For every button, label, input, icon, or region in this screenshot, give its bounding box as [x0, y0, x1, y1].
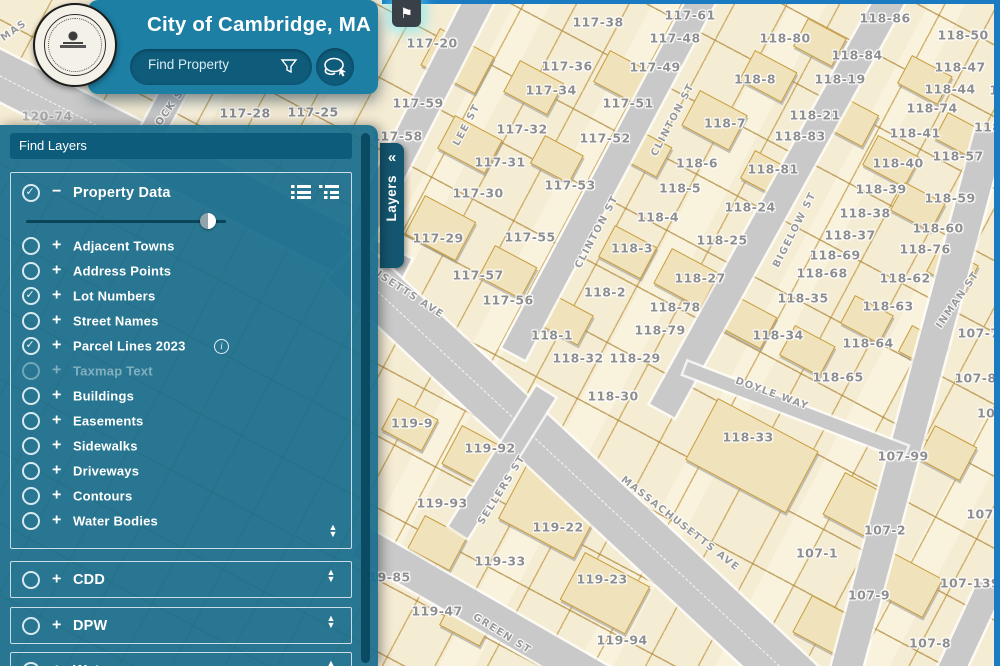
lot-number-label[interactable]: 118-47 — [934, 60, 985, 75]
layer-name[interactable]: Buildings — [73, 389, 134, 404]
lot-number-label[interactable]: 118-5 — [659, 181, 701, 196]
layer-name[interactable]: Contours — [73, 489, 132, 504]
expand-icon[interactable]: + — [52, 311, 61, 329]
layer-checkbox[interactable] — [22, 512, 40, 530]
lot-number-label[interactable]: 117-56 — [482, 293, 533, 308]
lot-number-label[interactable]: 118-59 — [924, 191, 975, 206]
group-name[interactable]: CDD — [73, 572, 105, 588]
lot-number-label[interactable]: 118-64 — [842, 336, 893, 351]
layer-group-cdd[interactable]: +CDD▲▼ — [10, 561, 352, 598]
layer-checkbox[interactable] — [22, 387, 40, 405]
check-icon: ✓ — [26, 185, 35, 198]
lot-number-label[interactable]: 118-86 — [859, 11, 910, 26]
panel-scrollbar[interactable] — [361, 133, 370, 663]
lot-number-label[interactable]: 118-68 — [796, 266, 847, 281]
lot-number-label[interactable]: 118-78 — [649, 300, 700, 315]
lot-number-label[interactable]: 117-55 — [504, 230, 555, 245]
check-icon: ✓ — [26, 288, 35, 301]
layer-name[interactable]: Water Bodies — [73, 514, 158, 529]
lot-number-label[interactable]: 117-59 — [392, 96, 443, 111]
lot-number-label[interactable]: 118-4 — [637, 210, 679, 225]
lot-number-label[interactable]: 117-53 — [544, 178, 595, 193]
lasso-select-button[interactable] — [316, 48, 354, 86]
layer-group-property-data[interactable]: ✓−Property Data+Adjacent Towns+Address P… — [10, 172, 352, 549]
lot-number-label[interactable]: 118-74 — [906, 101, 957, 116]
group-header-row[interactable]: +DPW▲▼ — [11, 615, 351, 637]
lot-number-label[interactable]: 120-74 — [21, 109, 72, 124]
reorder-icon[interactable]: ▲▼ — [325, 569, 337, 583]
lot-number-label[interactable]: 118-50 — [937, 28, 988, 43]
lot-number-label[interactable]: 118-34 — [752, 328, 803, 343]
expand-icon[interactable]: + — [52, 336, 61, 354]
lot-number-label[interactable]: 117-51 — [602, 96, 653, 111]
search-input[interactable] — [146, 56, 270, 73]
layers-tab-label: Layers — [384, 175, 399, 222]
legend-indent-icon[interactable] — [319, 185, 339, 201]
expand-icon[interactable]: + — [52, 570, 61, 588]
layer-checkbox[interactable] — [22, 312, 40, 330]
layer-checkbox[interactable] — [22, 262, 40, 280]
layer-row-adjacent-towns[interactable]: +Adjacent Towns — [11, 235, 351, 257]
layer-name[interactable]: Parcel Lines 2023 — [73, 339, 186, 354]
lot-number-label[interactable]: 118-3 — [611, 241, 653, 256]
layer-checkbox[interactable] — [22, 362, 40, 380]
slider-track[interactable] — [26, 220, 226, 223]
lot-number-label[interactable]: 119-47 — [411, 604, 462, 619]
map-right-edge — [994, 0, 1000, 666]
lot-number-label[interactable]: 118-60 — [912, 221, 963, 236]
lot-number-label[interactable]: 117-36 — [541, 59, 592, 74]
layer-row-buildings[interactable]: +Buildings — [11, 385, 351, 407]
lot-number-label[interactable]: 118-80 — [759, 31, 810, 46]
layer-row-water-bodies[interactable]: +Water Bodies — [11, 510, 351, 532]
layer-checkbox[interactable] — [22, 571, 40, 589]
lot-number-label[interactable]: 117-61 — [664, 8, 715, 23]
opacity-slider[interactable] — [26, 213, 226, 229]
lot-number-label[interactable]: 119-23 — [576, 572, 627, 587]
layer-name[interactable]: Taxmap Text — [73, 364, 153, 379]
layer-name[interactable]: Street Names — [73, 314, 159, 329]
reorder-icon[interactable]: ▲▼ — [327, 524, 339, 538]
lot-number-label[interactable]: 107-8 — [909, 636, 951, 651]
lot-number-label[interactable]: 117-31 — [474, 155, 525, 170]
layer-checkbox[interactable] — [22, 662, 40, 666]
layer-name[interactable]: Lot Numbers — [73, 289, 155, 304]
expand-icon[interactable]: + — [52, 486, 61, 504]
lot-number-label[interactable]: 118-19 — [814, 72, 865, 87]
lot-number-label[interactable]: 117-34 — [525, 83, 576, 98]
lot-number-label[interactable]: 119-93 — [416, 496, 467, 511]
slider-handle[interactable] — [200, 213, 216, 229]
expand-icon[interactable]: + — [52, 616, 61, 634]
layer-checkbox[interactable] — [22, 462, 40, 480]
layer-checkbox[interactable] — [22, 617, 40, 635]
lot-number-label[interactable]: 118-38 — [839, 206, 890, 221]
lot-number-label[interactable]: 117-52 — [579, 131, 630, 146]
lot-number-label[interactable]: 119-22 — [532, 520, 583, 535]
layer-name[interactable]: Adjacent Towns — [73, 239, 175, 254]
lot-number-label[interactable]: 117-57 — [452, 268, 503, 283]
lot-number-label[interactable]: 107-9 — [848, 588, 890, 603]
lot-number-label[interactable]: 117-32 — [496, 122, 547, 137]
reorder-icon[interactable]: ▲▼ — [325, 615, 337, 629]
layer-row-taxmap-text[interactable]: +Taxmap Text — [11, 360, 351, 382]
page-title: City of Cambridge, MA — [146, 13, 372, 37]
layer-row-easements[interactable]: +Easements — [11, 410, 351, 432]
lot-number-label[interactable]: 117-30 — [452, 186, 503, 201]
lot-number-label[interactable]: 107-139 — [940, 576, 1000, 591]
layer-checkbox[interactable] — [22, 487, 40, 505]
find-layers-bar[interactable]: Find Layers — [10, 133, 352, 159]
lot-number-label[interactable]: 117-38 — [572, 15, 623, 30]
expand-icon[interactable]: + — [52, 511, 61, 529]
lot-number-label[interactable]: 118-37 — [824, 228, 875, 243]
lot-number-label[interactable]: 118-27 — [674, 271, 725, 286]
lot-number-label[interactable]: 117-25 — [287, 105, 338, 120]
group-header-row[interactable]: +Water▲▼ — [11, 660, 351, 666]
lot-number-label[interactable]: 119-94 — [596, 633, 647, 648]
layer-group-water[interactable]: +Water▲▼ — [10, 652, 352, 666]
lot-number-label[interactable]: 118-7 — [704, 116, 746, 131]
lot-number-label[interactable]: 118-65 — [812, 370, 863, 385]
layers-collapse-tab[interactable]: « Layers — [380, 143, 404, 268]
lot-number-label[interactable]: 118-24 — [724, 200, 775, 215]
layer-row-contours[interactable]: +Contours — [11, 485, 351, 507]
layer-name[interactable]: Easements — [73, 414, 143, 429]
lot-number-label[interactable]: 118-33 — [722, 430, 773, 445]
layer-row-address-points[interactable]: +Address Points — [11, 260, 351, 282]
lot-number-label[interactable]: 118-25 — [696, 233, 747, 248]
info-icon[interactable]: i — [214, 339, 229, 354]
lot-number-label[interactable]: 117-29 — [412, 231, 463, 246]
lot-number-label[interactable]: 118-2 — [584, 285, 626, 300]
header-card: City of Cambridge, MA — [88, 0, 378, 94]
lot-number-label[interactable]: 118-35 — [777, 291, 828, 306]
expand-icon[interactable]: + — [52, 411, 61, 429]
filter-icon[interactable] — [280, 57, 298, 75]
lasso-icon — [316, 48, 354, 86]
lot-number-label[interactable]: 118-29 — [609, 351, 660, 366]
lot-number-label[interactable]: 118-69 — [809, 248, 860, 263]
lot-number-label[interactable]: 117-28 — [219, 106, 270, 121]
layer-checkbox[interactable]: ✓ — [22, 184, 40, 202]
group-header-row[interactable]: ✓−Property Data — [11, 182, 351, 204]
group-header-row[interactable]: +CDD▲▼ — [11, 569, 351, 591]
layer-checkbox[interactable] — [22, 237, 40, 255]
lot-number-label[interactable]: 118-44 — [924, 82, 975, 97]
layer-row-driveways[interactable]: +Driveways — [11, 460, 351, 482]
expand-icon[interactable]: + — [52, 461, 61, 479]
lot-number-label[interactable]: 118-21 — [789, 108, 840, 123]
legend-list-icon[interactable] — [291, 185, 311, 201]
expand-icon[interactable]: + — [52, 386, 61, 404]
layer-checkbox[interactable]: ✓ — [22, 337, 40, 355]
expand-icon[interactable]: + — [52, 361, 61, 379]
lot-number-label[interactable]: 118-57 — [932, 149, 983, 164]
lot-number-label[interactable]: 118-30 — [587, 389, 638, 404]
lot-number-label[interactable]: 119-33 — [474, 554, 525, 569]
lot-number-label[interactable]: 117-49 — [629, 60, 680, 75]
lot-number-label[interactable]: 118-6 — [676, 156, 718, 171]
expand-icon[interactable]: + — [52, 236, 61, 254]
app-window: 117-20117-38117-61117-48117-36117-49117-… — [0, 0, 1000, 666]
lot-number-label[interactable]: 117-20 — [406, 36, 457, 51]
lot-number-label[interactable]: 119-92 — [464, 441, 515, 456]
layer-checkbox[interactable] — [22, 437, 40, 455]
layers-panel: Find Layers ✓−Property Data+Adjacent Tow… — [0, 125, 378, 666]
lot-number-label[interactable]: 118-76 — [899, 242, 950, 257]
group-name[interactable]: Water — [73, 663, 114, 666]
lot-number-label[interactable]: 118-39 — [855, 182, 906, 197]
lot-number-label[interactable]: 119-9 — [391, 416, 433, 431]
lot-number-label[interactable]: 117-48 — [649, 31, 700, 46]
lot-number-label[interactable]: 118-41 — [889, 126, 940, 141]
layer-name[interactable]: Sidewalks — [73, 439, 138, 454]
group-name[interactable]: DPW — [73, 618, 107, 634]
lot-number-label[interactable]: 118-83 — [774, 129, 825, 144]
lot-number-label[interactable]: 118-1 — [531, 328, 573, 343]
layer-group-dpw[interactable]: +DPW▲▼ — [10, 607, 352, 644]
lot-number-label[interactable]: 118-63 — [862, 299, 913, 314]
flag-icon: ⚑ — [400, 5, 413, 21]
lot-number-label[interactable]: 117-58 — [371, 129, 422, 144]
layer-row-parcel-lines-2023[interactable]: ✓+Parcel Lines 2023i — [11, 335, 351, 357]
expand-icon[interactable]: + — [52, 261, 61, 279]
lot-number-label[interactable]: 107-2 — [864, 523, 906, 538]
find-property-search — [130, 49, 312, 85]
expand-icon[interactable]: + — [52, 436, 61, 454]
layer-row-street-names[interactable]: +Street Names — [11, 310, 351, 332]
city-seal-logo — [33, 3, 117, 87]
lot-number-label[interactable]: 118-79 — [634, 323, 685, 338]
expand-icon[interactable]: + — [52, 286, 61, 304]
lot-number-label[interactable]: 118-62 — [879, 271, 930, 286]
collapse-icon[interactable]: − — [52, 183, 61, 201]
layer-row-sidewalks[interactable]: +Sidewalks — [11, 435, 351, 457]
flag-button[interactable]: ⚑ — [392, 0, 421, 27]
layer-checkbox[interactable] — [22, 412, 40, 430]
group-name[interactable]: Property Data — [73, 185, 171, 201]
check-icon: ✓ — [26, 338, 35, 351]
lot-number-label[interactable]: 118-84 — [831, 48, 882, 63]
lot-number-label[interactable]: 118-32 — [552, 351, 603, 366]
map-top-edge — [382, 0, 1000, 4]
lot-number-label[interactable]: 107-99 — [877, 449, 928, 464]
collapse-chevrons-icon: « — [380, 149, 404, 166]
layer-name[interactable]: Driveways — [73, 464, 139, 479]
lot-number-label[interactable]: 118-81 — [747, 162, 798, 177]
layer-row-lot-numbers[interactable]: ✓+Lot Numbers — [11, 285, 351, 307]
reorder-icon[interactable]: ▲▼ — [325, 660, 337, 666]
lot-number-label[interactable]: 118-40 — [872, 156, 923, 171]
lot-number-label[interactable]: 118-8 — [734, 72, 776, 87]
layer-checkbox[interactable]: ✓ — [22, 287, 40, 305]
layer-name[interactable]: Address Points — [73, 264, 171, 279]
lot-number-label[interactable]: 107-1 — [796, 546, 838, 561]
expand-icon[interactable]: + — [52, 661, 61, 666]
